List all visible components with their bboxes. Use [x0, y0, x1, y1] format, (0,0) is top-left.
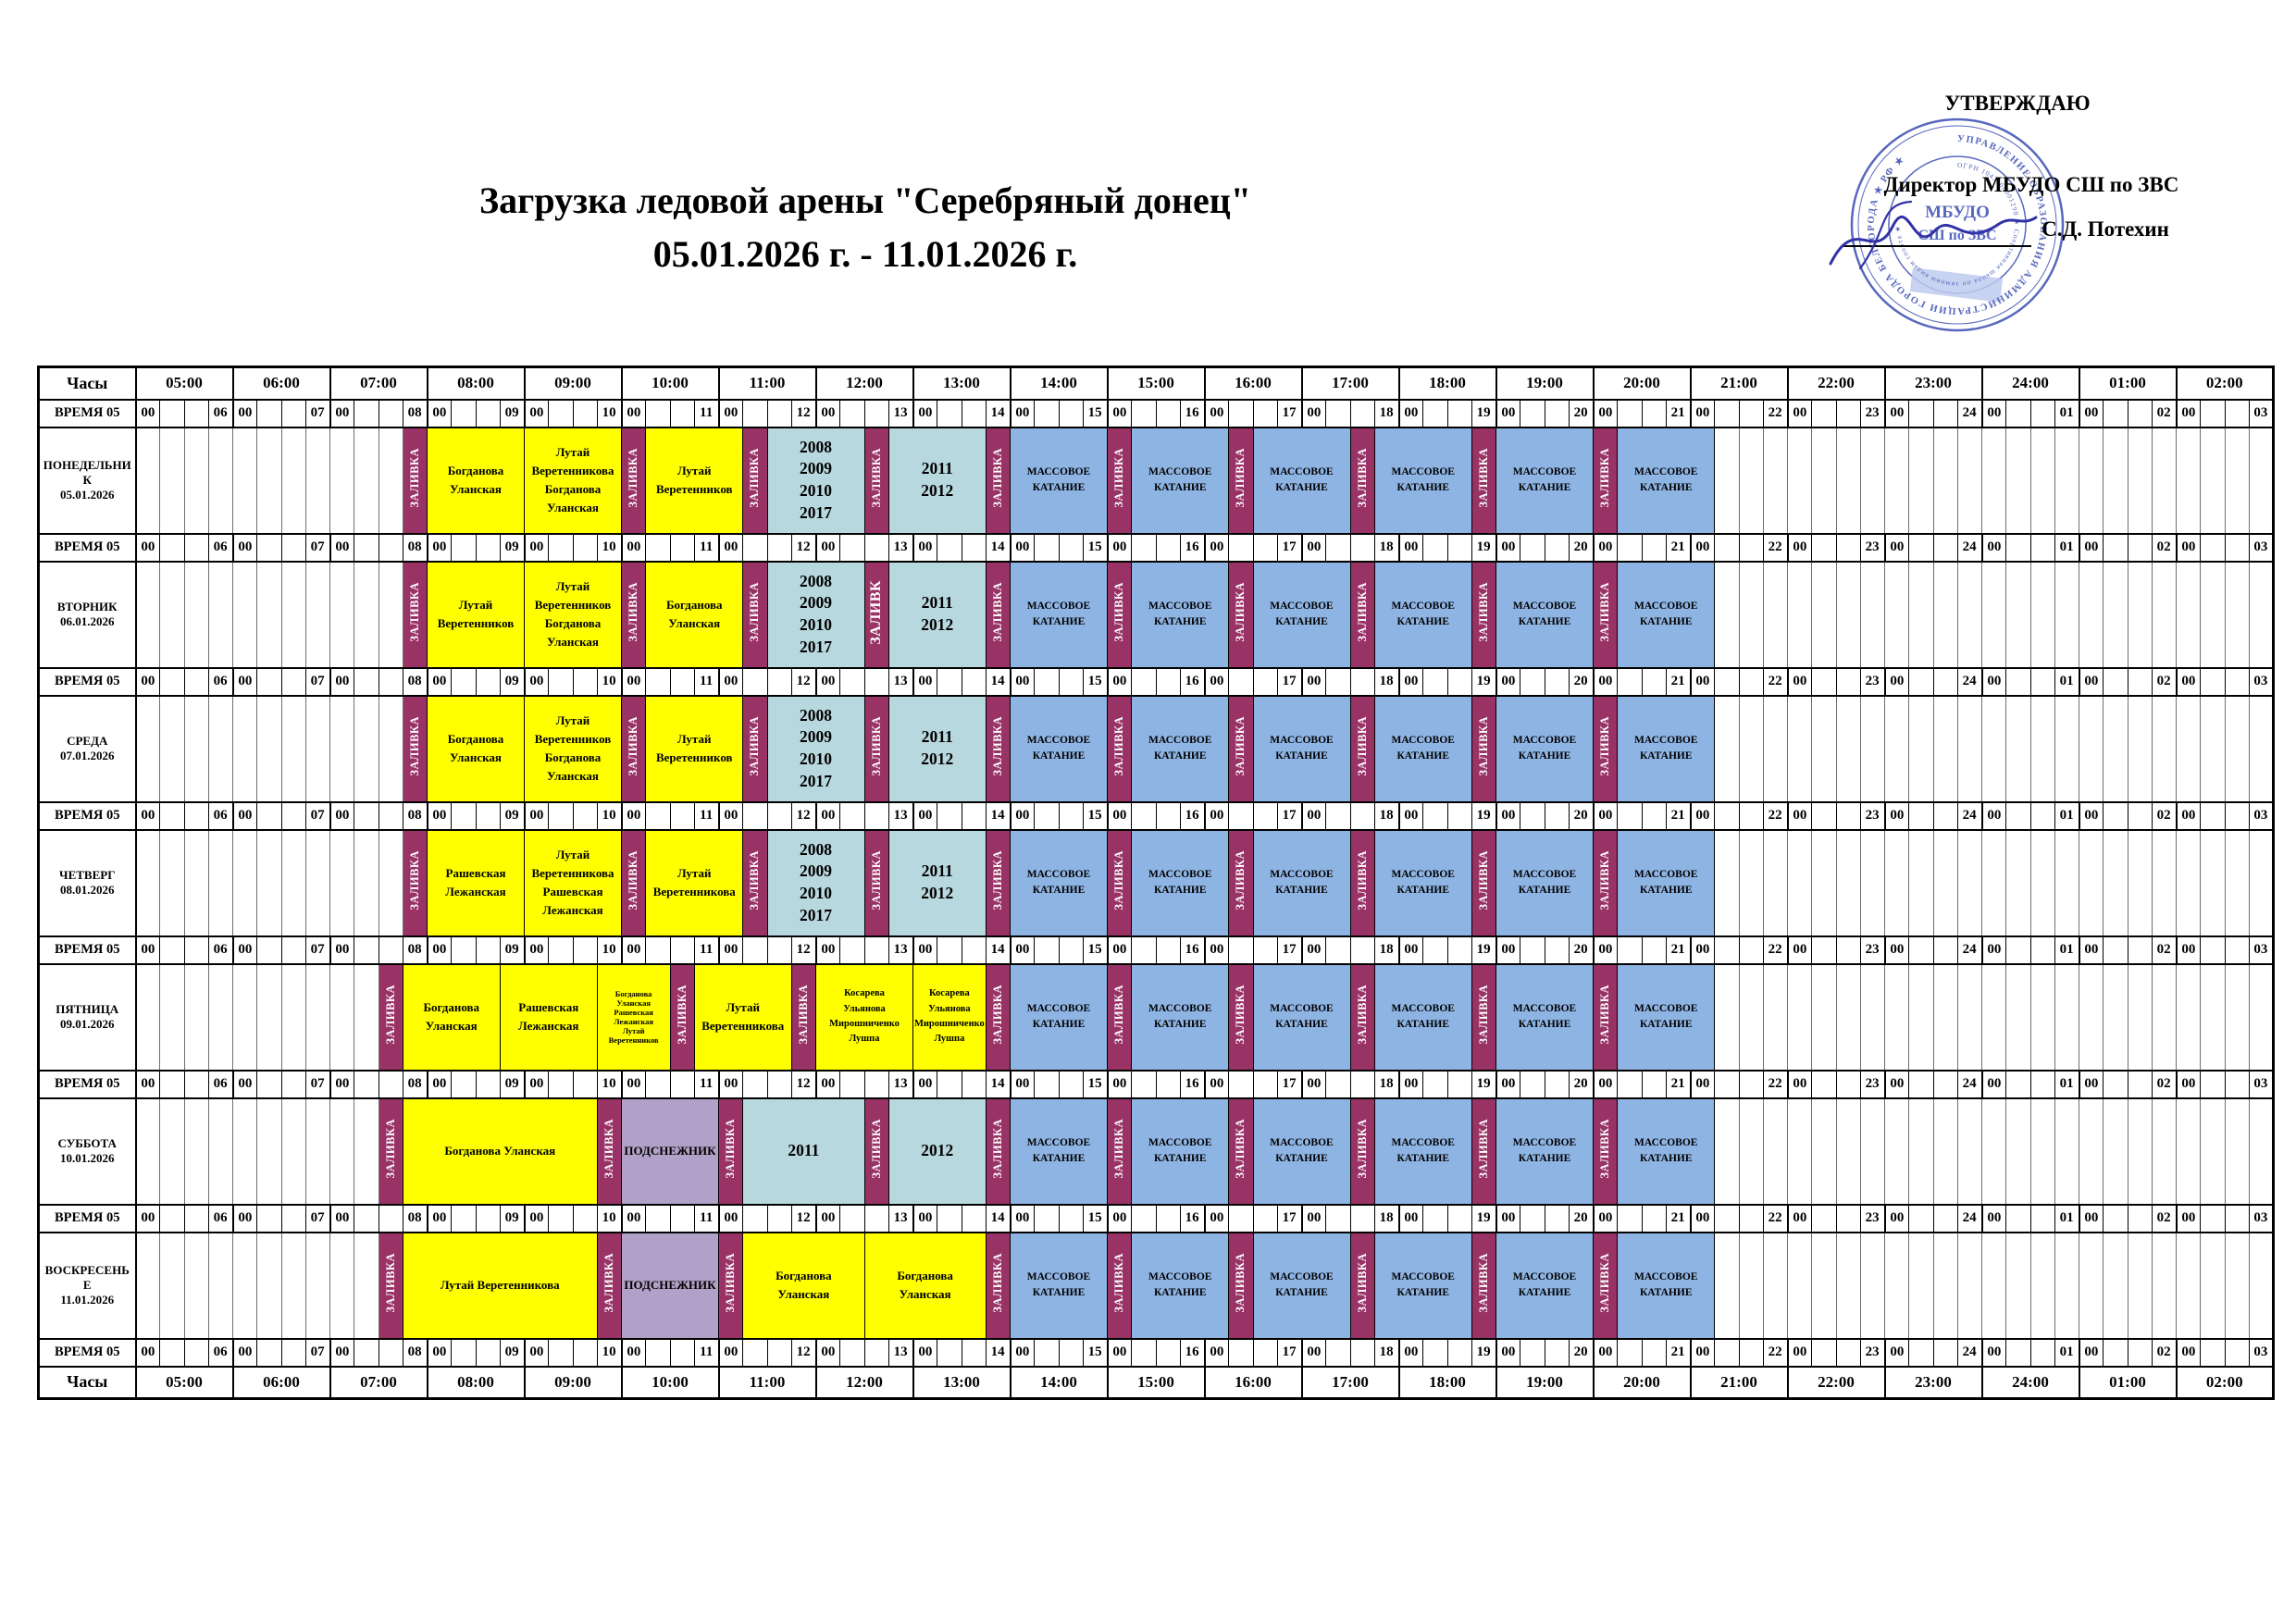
time-cell: 20	[1569, 1339, 1593, 1367]
mass-skating-block: МАССОВОЕКАТАНИЕ	[1618, 562, 1715, 668]
day-label: СУББОТА10.01.2026	[39, 1098, 136, 1205]
time-cell	[1812, 534, 1836, 562]
empty-cell	[184, 427, 208, 534]
time-cell: 24	[1957, 1071, 1981, 1098]
zalivka-block: ЗАЛИВКА	[1594, 696, 1618, 802]
time-cell: 07	[305, 802, 329, 830]
time-cell: 00	[525, 534, 549, 562]
time-cell: 00	[2177, 400, 2201, 427]
empty-cell	[2079, 562, 2104, 668]
empty-cell	[1982, 427, 2006, 534]
zalivka-block: ЗАЛИВКА	[986, 562, 1010, 668]
empty-cell	[281, 1233, 305, 1339]
hour-header: 23:00	[1885, 367, 1982, 400]
time-cell: 06	[208, 668, 232, 696]
empty-cell	[354, 562, 379, 668]
empty-cell	[1788, 1233, 1812, 1339]
zalivka-block: ЗАЛИВКА	[1108, 427, 1132, 534]
time-cell	[767, 1071, 791, 1098]
time-cell	[476, 802, 500, 830]
time-cell: 00	[1399, 1205, 1423, 1233]
time-cell	[1253, 1339, 1277, 1367]
empty-cell	[136, 562, 160, 668]
time-cell: 23	[1860, 1339, 1884, 1367]
time-cell: 00	[1691, 936, 1715, 964]
time-cell: 00	[330, 1071, 354, 1098]
empty-cell	[281, 1098, 305, 1205]
time-cell	[1229, 400, 1253, 427]
time-cell: 22	[1763, 1339, 1787, 1367]
time-cell	[1035, 534, 1059, 562]
empty-cell	[1982, 1098, 2006, 1205]
empty-cell	[2201, 964, 2225, 1071]
time-row-header: ВРЕМЯ 05	[39, 400, 136, 427]
empty-cell	[184, 562, 208, 668]
time-cell	[2006, 1205, 2030, 1233]
empty-cell	[354, 1098, 379, 1205]
time-cell: 12	[791, 400, 815, 427]
empty-cell	[1909, 427, 1933, 534]
mass-skating-block: МАССОВОЕКАТАНИЕ	[1011, 1098, 1108, 1205]
time-cell: 00	[816, 1205, 840, 1233]
time-cell: 20	[1569, 1071, 1593, 1098]
time-cell	[1520, 1339, 1545, 1367]
time-cell: 17	[1277, 534, 1301, 562]
time-cell	[937, 802, 962, 830]
empty-cell	[2128, 696, 2152, 802]
time-cell: 19	[1471, 1205, 1496, 1233]
empty-cell	[2177, 1233, 2201, 1339]
time-cell	[864, 1339, 888, 1367]
time-cell	[1933, 534, 1957, 562]
time-cell: 20	[1569, 802, 1593, 830]
empty-cell	[1739, 562, 1763, 668]
time-cell: 01	[2054, 400, 2079, 427]
empty-cell	[208, 696, 232, 802]
zalivka-block: ЗАЛИВКА	[864, 427, 888, 534]
time-row: ВРЕМЯ 0500060007000800090010001100120013…	[39, 1071, 2274, 1098]
zalivka-block: ЗАЛИВКА	[1594, 1233, 1618, 1339]
time-cell: 07	[305, 1339, 329, 1367]
time-cell: 24	[1957, 1339, 1981, 1367]
empty-cell	[2249, 696, 2273, 802]
time-cell: 11	[694, 400, 718, 427]
time-cell	[2128, 1205, 2152, 1233]
zalivka-block: ЗАЛИВКА	[743, 830, 767, 936]
time-cell	[1642, 668, 1666, 696]
time-cell	[1642, 400, 1666, 427]
mass-skating-block: МАССОВОЕКАТАНИЕ	[1011, 1233, 1108, 1339]
empty-cell	[208, 964, 232, 1071]
signature-icon	[1823, 176, 2064, 278]
time-cell: 12	[791, 668, 815, 696]
time-cell	[549, 534, 573, 562]
year-group-block: 20112012	[888, 696, 986, 802]
time-cell	[476, 1071, 500, 1098]
time-cell	[379, 668, 403, 696]
time-cell: 00	[1594, 668, 1618, 696]
empty-cell	[2201, 562, 2225, 668]
empty-cell	[1933, 427, 1957, 534]
time-cell	[1812, 400, 1836, 427]
time-cell	[1812, 668, 1836, 696]
time-cell: 00	[525, 1339, 549, 1367]
time-row: ВРЕМЯ 0500060007000800090010001100120013…	[39, 802, 2274, 830]
time-cell	[1545, 1071, 1569, 1098]
time-cell: 00	[1594, 1205, 1618, 1233]
time-cell: 00	[428, 534, 452, 562]
group-session-block: РашевскаяЛежанская	[428, 830, 525, 936]
time-cell: 00	[233, 400, 257, 427]
empty-cell	[1812, 830, 1836, 936]
time-cell: 00	[1399, 534, 1423, 562]
time-cell	[670, 802, 694, 830]
time-cell	[184, 936, 208, 964]
time-cell	[1059, 1205, 1083, 1233]
empty-cell	[257, 562, 281, 668]
time-cell	[1642, 1071, 1666, 1098]
time-cell: 10	[597, 534, 621, 562]
zalivka-block: ЗАЛИВК	[864, 562, 888, 668]
empty-cell	[1957, 830, 1981, 936]
time-cell: 16	[1180, 802, 1204, 830]
time-cell	[452, 400, 476, 427]
time-cell	[1423, 534, 1447, 562]
time-cell: 00	[1108, 936, 1132, 964]
empty-cell	[2128, 1098, 2152, 1205]
year-group-block: 2008200920102017	[767, 696, 864, 802]
time-cell: 17	[1277, 668, 1301, 696]
empty-cell	[2104, 696, 2128, 802]
time-cell: 00	[136, 1339, 160, 1367]
time-cell	[1156, 936, 1180, 964]
time-cell: 21	[1666, 1339, 1690, 1367]
empty-cell	[1982, 830, 2006, 936]
time-cell: 00	[233, 1339, 257, 1367]
time-cell	[379, 1205, 403, 1233]
empty-cell	[1763, 1233, 1787, 1339]
time-cell: 06	[208, 1071, 232, 1098]
time-cell: 00	[233, 534, 257, 562]
empty-cell	[2054, 696, 2079, 802]
time-cell	[1642, 1205, 1666, 1233]
time-cell: 19	[1471, 936, 1496, 964]
zalivka-block: ЗАЛИВКА	[403, 427, 427, 534]
time-cell	[2006, 668, 2030, 696]
time-cell: 00	[1205, 534, 1229, 562]
time-cell	[160, 1205, 184, 1233]
time-cell: 19	[1471, 1071, 1496, 1098]
time-cell	[452, 534, 476, 562]
zalivka-block: ЗАЛИВКА	[403, 696, 427, 802]
empty-cell	[1933, 696, 1957, 802]
empty-cell	[379, 830, 403, 936]
time-cell: 00	[1691, 534, 1715, 562]
year-group-block: 2012	[888, 1098, 986, 1205]
time-cell: 07	[305, 400, 329, 427]
hour-header: 24:00	[1982, 1367, 2079, 1399]
zalivka-block: ЗАЛИВКА	[379, 1098, 403, 1205]
year-group-block: 2011	[743, 1098, 864, 1205]
time-cell: 00	[1011, 1071, 1035, 1098]
time-cell: 00	[136, 400, 160, 427]
time-cell: 18	[1374, 1071, 1398, 1098]
empty-cell	[208, 427, 232, 534]
time-cell	[767, 1339, 791, 1367]
time-cell	[281, 668, 305, 696]
time-cell	[2030, 1205, 2054, 1233]
empty-cell	[354, 427, 379, 534]
hour-header: 17:00	[1302, 367, 1399, 400]
group-session-block: ЛутайВеретенниковаРашевскаяЛежанская	[525, 830, 622, 936]
time-cell: 14	[986, 400, 1010, 427]
time-cell	[1059, 936, 1083, 964]
empty-cell	[2177, 830, 2201, 936]
empty-cell	[1739, 427, 1763, 534]
time-cell: 15	[1083, 1339, 1107, 1367]
time-cell: 00	[1011, 936, 1035, 964]
time-cell	[354, 534, 379, 562]
empty-cell	[281, 562, 305, 668]
time-cell: 17	[1277, 1205, 1301, 1233]
time-cell	[281, 534, 305, 562]
time-cell	[476, 534, 500, 562]
time-cell: 00	[719, 668, 743, 696]
empty-cell	[2054, 562, 2079, 668]
empty-cell	[257, 1098, 281, 1205]
time-cell	[549, 802, 573, 830]
time-cell: 14	[986, 1071, 1010, 1098]
empty-cell	[184, 1233, 208, 1339]
time-cell	[2128, 1071, 2152, 1098]
time-cell: 22	[1763, 668, 1787, 696]
time-cell	[743, 802, 767, 830]
empty-cell	[257, 964, 281, 1071]
mass-skating-block: МАССОВОЕКАТАНИЕ	[1132, 964, 1229, 1071]
time-cell	[1423, 1205, 1447, 1233]
time-cell: 07	[305, 1071, 329, 1098]
empty-cell	[160, 1233, 184, 1339]
time-cell: 02	[2152, 534, 2176, 562]
time-cell	[2128, 534, 2152, 562]
empty-cell	[1909, 1233, 1933, 1339]
time-cell: 09	[500, 802, 524, 830]
hours-row-top: Часы05:0006:0007:0008:0009:0010:0011:001…	[39, 367, 2274, 400]
empty-cell	[2128, 427, 2152, 534]
mass-skating-block: МАССОВОЕКАТАНИЕ	[1011, 562, 1108, 668]
time-cell: 00	[1982, 1339, 2006, 1367]
empty-cell	[281, 830, 305, 936]
time-cell	[257, 1205, 281, 1233]
time-cell: 21	[1666, 668, 1690, 696]
time-cell	[864, 534, 888, 562]
time-cell	[1253, 802, 1277, 830]
time-cell	[1229, 1205, 1253, 1233]
time-cell: 09	[500, 668, 524, 696]
time-cell	[2225, 802, 2249, 830]
time-cell: 02	[2152, 1071, 2176, 1098]
group-session-block: РашевскаяЛежанская	[500, 964, 597, 1071]
time-cell	[1447, 936, 1471, 964]
time-cell	[1350, 1339, 1374, 1367]
time-cell	[1350, 1205, 1374, 1233]
empty-cell	[2249, 1233, 2273, 1339]
year-group-block: 20112012	[888, 562, 986, 668]
time-cell: 00	[816, 1339, 840, 1367]
zalivka-block: ЗАЛИВКА	[622, 427, 646, 534]
zalivka-block: ЗАЛИВКА	[743, 427, 767, 534]
time-cell	[646, 936, 670, 964]
hour-header: 23:00	[1885, 1367, 1982, 1399]
time-cell	[646, 1339, 670, 1367]
time-cell	[937, 400, 962, 427]
time-cell: 00	[1302, 400, 1326, 427]
group-session-block: БогдановаУланская	[743, 1233, 864, 1339]
time-cell: 00	[719, 1339, 743, 1367]
empty-cell	[136, 964, 160, 1071]
time-cell: 00	[913, 534, 937, 562]
time-cell	[2030, 1339, 2054, 1367]
time-cell	[1132, 534, 1156, 562]
time-cell	[549, 1339, 573, 1367]
empty-cell	[1885, 830, 1909, 936]
time-cell: 00	[2079, 802, 2104, 830]
time-cell: 00	[1496, 400, 1520, 427]
empty-cell	[136, 1098, 160, 1205]
time-cell: 09	[500, 1205, 524, 1233]
time-cell	[257, 1071, 281, 1098]
time-cell	[573, 400, 597, 427]
time-cell	[937, 534, 962, 562]
hour-header: 22:00	[1788, 367, 1885, 400]
time-cell	[1545, 668, 1569, 696]
zalivka-block: ЗАЛИВКА	[1471, 964, 1496, 1071]
hour-header: 18:00	[1399, 367, 1496, 400]
hour-header: 07:00	[330, 1367, 428, 1399]
time-cell	[937, 668, 962, 696]
hour-header: 20:00	[1594, 367, 1691, 400]
group-session-block: ЛутайВеретенниковБогдановаУланская	[525, 562, 622, 668]
time-cell: 00	[719, 802, 743, 830]
empty-cell	[281, 964, 305, 1071]
time-cell: 00	[2177, 802, 2201, 830]
empty-cell	[1812, 964, 1836, 1071]
time-cell: 00	[1108, 1339, 1132, 1367]
time-cell: 23	[1860, 668, 1884, 696]
time-cell	[1739, 534, 1763, 562]
time-cell: 00	[1885, 668, 1909, 696]
time-cell: 00	[2177, 1339, 2201, 1367]
empty-cell	[1885, 1098, 1909, 1205]
time-cell	[1715, 1071, 1739, 1098]
time-cell	[1035, 1071, 1059, 1098]
time-cell	[2128, 802, 2152, 830]
time-cell: 00	[1885, 1071, 1909, 1098]
time-cell	[379, 400, 403, 427]
time-cell	[767, 802, 791, 830]
empty-cell	[233, 830, 257, 936]
empty-cell	[1812, 1233, 1836, 1339]
zalivka-block: ЗАЛИВКА	[1108, 1233, 1132, 1339]
time-cell	[1618, 400, 1642, 427]
time-cell: 00	[1982, 936, 2006, 964]
time-cell: 00	[136, 802, 160, 830]
time-cell	[354, 400, 379, 427]
time-cell: 00	[525, 1205, 549, 1233]
time-cell	[281, 1205, 305, 1233]
empty-cell	[184, 964, 208, 1071]
group-session-block: ЛутайВеретенниковаБогдановаУланская	[525, 427, 622, 534]
time-cell: 00	[1108, 802, 1132, 830]
time-cell: 00	[1011, 1205, 1035, 1233]
empty-cell	[233, 1098, 257, 1205]
time-cell	[646, 400, 670, 427]
empty-cell	[1909, 696, 1933, 802]
time-cell	[549, 400, 573, 427]
zalivka-block: ЗАЛИВКА	[791, 964, 815, 1071]
group-session-block: ЛутайВеретенников	[428, 562, 525, 668]
time-cell	[1156, 1071, 1180, 1098]
time-cell: 09	[500, 534, 524, 562]
empty-cell	[330, 964, 354, 1071]
empty-cell	[1933, 964, 1957, 1071]
time-cell	[2201, 534, 2225, 562]
empty-cell	[160, 696, 184, 802]
time-cell	[257, 534, 281, 562]
mass-skating-block: МАССОВОЕКАТАНИЕ	[1253, 964, 1350, 1071]
day-label: ЧЕТВЕРГ08.01.2026	[39, 830, 136, 936]
time-cell	[1739, 802, 1763, 830]
time-cell: 00	[525, 668, 549, 696]
time-cell: 18	[1374, 534, 1398, 562]
empty-cell	[2152, 830, 2176, 936]
time-cell: 00	[1302, 936, 1326, 964]
time-cell: 03	[2249, 400, 2273, 427]
time-cell: 22	[1763, 400, 1787, 427]
time-cell	[1520, 1071, 1545, 1098]
time-cell	[1715, 400, 1739, 427]
time-cell	[2225, 1205, 2249, 1233]
time-cell: 16	[1180, 668, 1204, 696]
empty-cell	[1933, 1098, 1957, 1205]
empty-cell	[2054, 1233, 2079, 1339]
time-cell: 24	[1957, 534, 1981, 562]
time-cell: 00	[428, 936, 452, 964]
time-cell: 08	[403, 668, 427, 696]
time-cell: 23	[1860, 534, 1884, 562]
time-cell	[476, 1205, 500, 1233]
time-cell	[2030, 534, 2054, 562]
time-cell: 00	[913, 1071, 937, 1098]
time-cell	[2201, 1205, 2225, 1233]
empty-cell	[2225, 562, 2249, 668]
empty-cell	[2079, 1233, 2104, 1339]
mass-skating-block: МАССОВОЕКАТАНИЕ	[1011, 964, 1108, 1071]
time-cell: 00	[1496, 1205, 1520, 1233]
empty-cell	[1982, 964, 2006, 1071]
empty-cell	[354, 1233, 379, 1339]
time-cell: 00	[330, 668, 354, 696]
group-session-block: БогдановаУланская	[646, 562, 743, 668]
time-cell: 02	[2152, 936, 2176, 964]
time-cell	[1059, 668, 1083, 696]
time-cell: 10	[597, 936, 621, 964]
time-cell: 00	[1982, 668, 2006, 696]
zalivka-block: ЗАЛИВКА	[864, 1098, 888, 1205]
time-cell: 06	[208, 534, 232, 562]
zalivka-block: ЗАЛИВКА	[1350, 1233, 1374, 1339]
time-cell	[2201, 400, 2225, 427]
